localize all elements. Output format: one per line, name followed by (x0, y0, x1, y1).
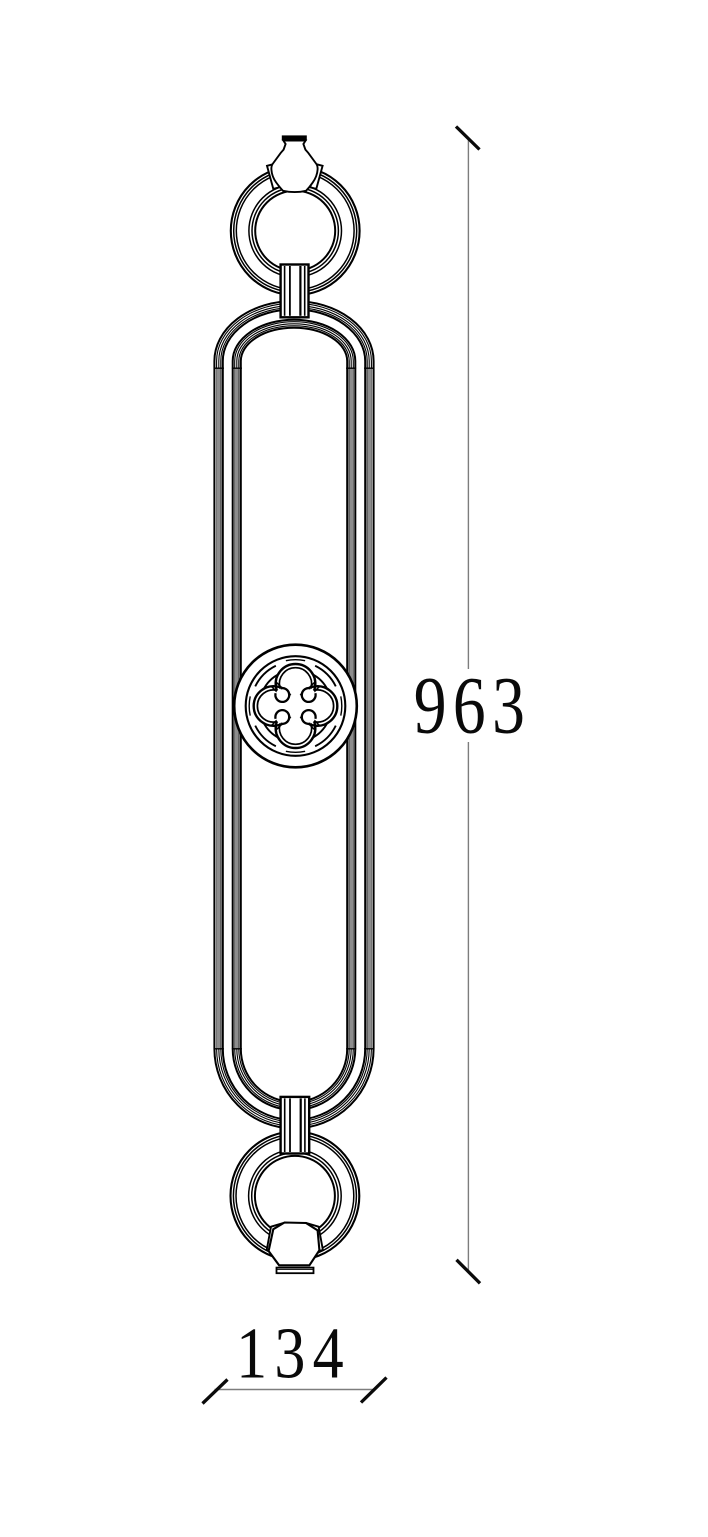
svg-text:134: 134 (236, 1313, 351, 1394)
svg-text:963: 963 (414, 661, 532, 752)
